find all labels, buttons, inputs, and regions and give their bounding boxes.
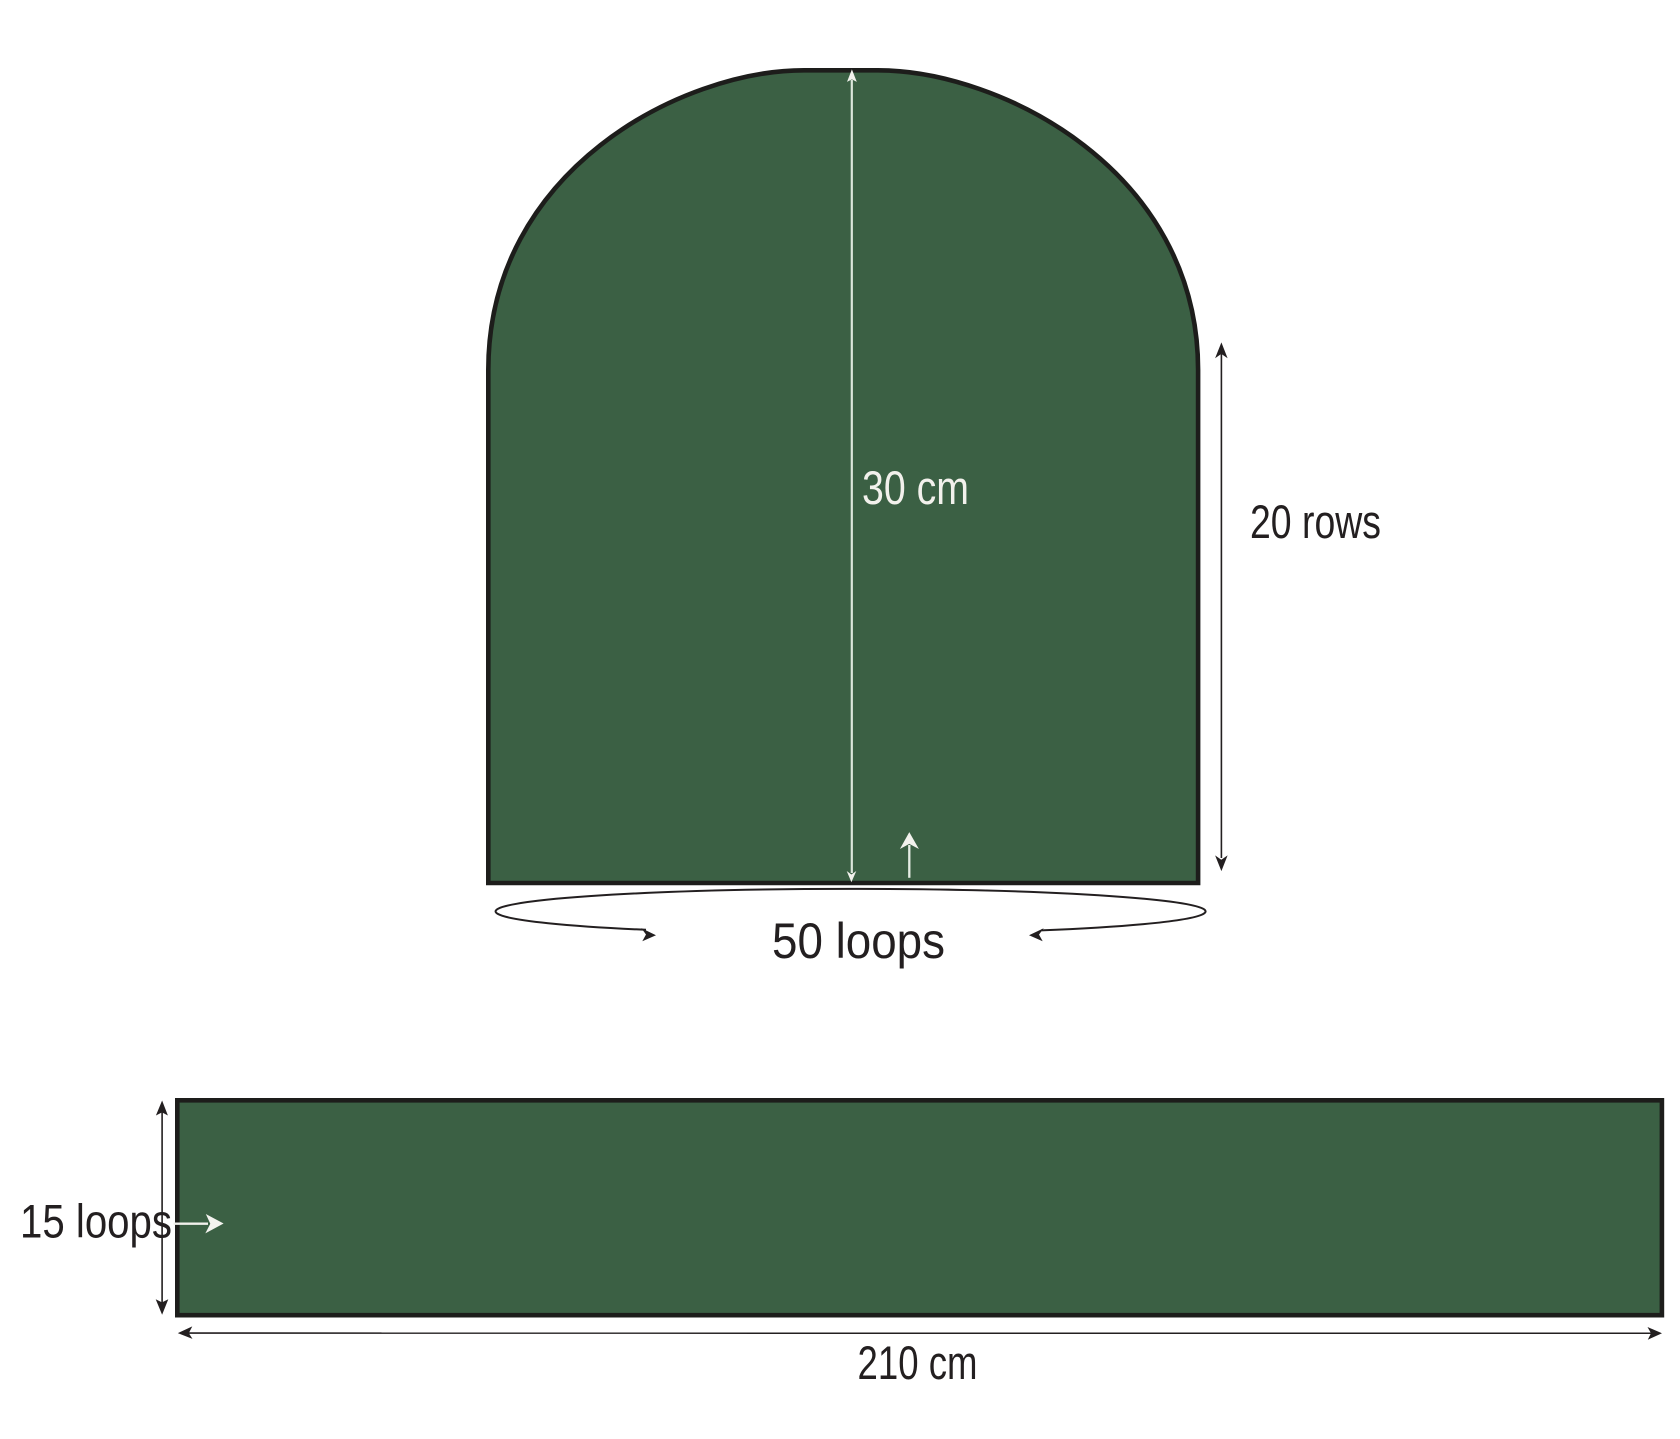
svg-text:15 loops: 15 loops (20, 1195, 172, 1248)
svg-text:30 cm: 30 cm (862, 461, 969, 514)
svg-text:50 loops: 50 loops (772, 913, 945, 969)
svg-text:210 cm: 210 cm (858, 1336, 978, 1389)
svg-text:20 rows: 20 rows (1250, 495, 1381, 548)
